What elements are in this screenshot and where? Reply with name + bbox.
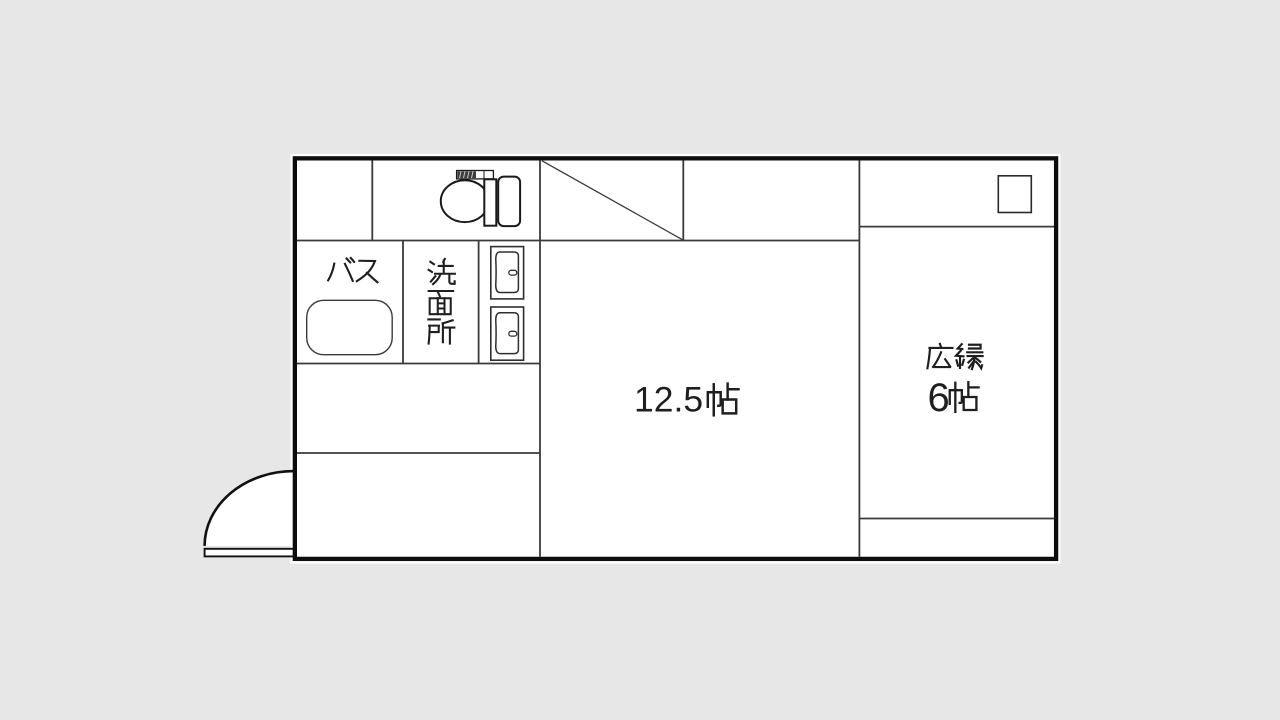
svg-text:6: 6 <box>928 376 950 420</box>
svg-text:12.5: 12.5 <box>634 380 703 420</box>
